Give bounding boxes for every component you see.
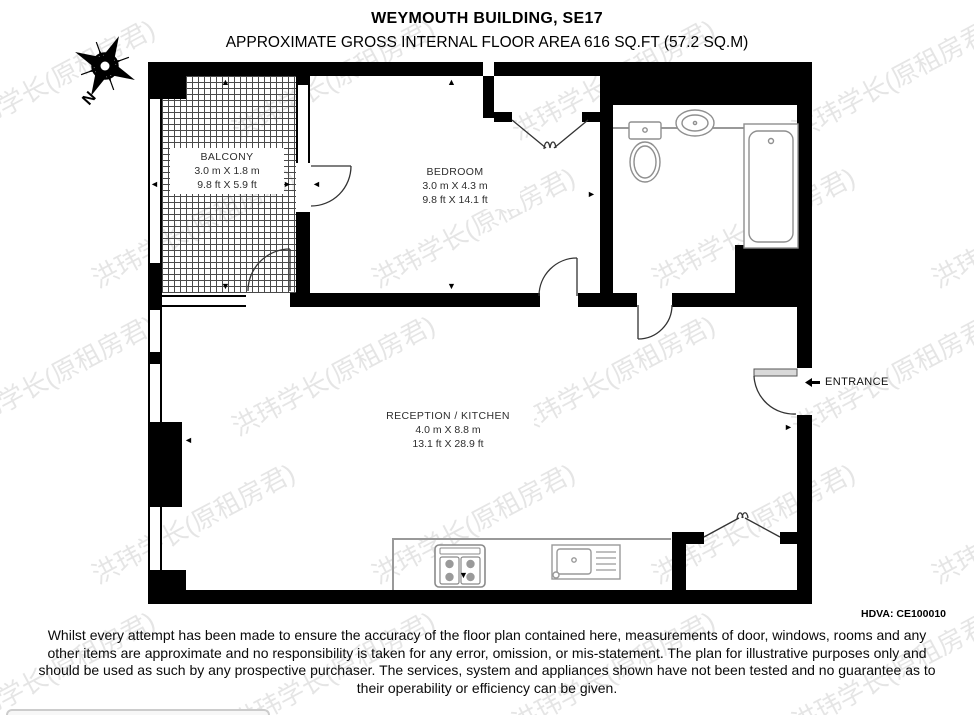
- door-bathroom: [638, 305, 672, 339]
- page-subtitle: APPROXIMATE GROSS INTERNAL FLOOR AREA 61…: [0, 34, 974, 52]
- hob-icon: [435, 545, 485, 587]
- window-balcony-bedroom: [296, 85, 310, 163]
- watermark-text: 洪玮学长(原租房君): [0, 9, 161, 147]
- reference-code: HDVA: CE100010: [861, 608, 946, 620]
- window-reception-1: [148, 310, 162, 352]
- dimension-arrow: ◄: [150, 180, 159, 189]
- room-size-metric: 3.0 m X 1.8 m: [170, 164, 284, 178]
- window-reception-2: [148, 364, 162, 422]
- door-bedroom: [539, 258, 577, 296]
- dimension-arrow: ▼: [459, 571, 468, 580]
- wall-top-joint-gap: [483, 62, 494, 76]
- dimension-arrow: ▼: [447, 282, 456, 291]
- watermark-text: 洪玮学长(原租房君): [85, 453, 301, 591]
- toilet-icon: [629, 122, 661, 182]
- room-label-reception-kitchen: RECEPTION / KITCHEN 4.0 m X 8.8 m 13.1 f…: [362, 407, 534, 453]
- entrance-label-group: ENTRANCE: [805, 376, 889, 388]
- closet-jamb-left: [483, 76, 494, 118]
- kitchen-sink-icon: [552, 545, 620, 579]
- dimension-arrow: ▲: [221, 78, 230, 87]
- room-name: BALCONY: [170, 150, 284, 164]
- dimension-arrow: ►: [784, 423, 793, 432]
- cropped-banner-edge: [6, 709, 270, 715]
- wall-bathroom-corner-block: [735, 245, 797, 307]
- window-reception-3: [148, 507, 162, 570]
- watermark-text: 洪玮学长(原租房君): [785, 305, 974, 443]
- wall-right-lower: [797, 415, 812, 604]
- wall-left-segment: [148, 352, 162, 364]
- wall-balcony-bedroom-divider: [296, 62, 310, 85]
- cupboard-stub-right: [780, 532, 797, 544]
- room-name: BEDROOM: [390, 165, 520, 179]
- watermark-text: 洪玮学长(原租房君): [785, 9, 974, 147]
- wall-corner-balcony: [148, 62, 186, 99]
- compass-north-label: N: [79, 89, 99, 109]
- dimension-arrow: ◄: [184, 436, 193, 445]
- room-size-imperial: 13.1 ft X 28.9 ft: [362, 437, 534, 451]
- watermark-text: 洪玮学长(原租房君): [365, 453, 581, 591]
- wall-right-upper: [797, 62, 812, 368]
- wall-bathroom-bottom: [613, 293, 637, 307]
- wall-left-pillar: [148, 422, 182, 507]
- wall-bathroom-bottom: [672, 293, 735, 307]
- floorplan-page: 洪玮学长(原租房君)洪玮学长(原租房君)洪玮学长(原租房君)洪玮学长(原租房君)…: [0, 0, 974, 715]
- cupboard-wall-left: [672, 532, 686, 590]
- room-size-metric: 3.0 m X 4.3 m: [390, 179, 520, 193]
- entrance-arrow-icon: [805, 378, 820, 387]
- bathtub-icon: [744, 124, 798, 248]
- basin-icon: [676, 110, 714, 136]
- cupboard-double-doors: [704, 513, 780, 537]
- dimension-arrow: ►: [587, 190, 596, 199]
- dimension-arrow: ►: [283, 180, 292, 189]
- watermark-text: 洪玮学长(原租房君): [0, 305, 161, 443]
- wall-left-segment: [148, 263, 162, 310]
- wall-balcony-bottom-jamb: [290, 293, 310, 307]
- cupboard-stub-left: [686, 532, 704, 544]
- wall-bedroom-bottom-jamb: [578, 293, 613, 307]
- page-title: WEYMOUTH BUILDING, SE17: [0, 10, 974, 28]
- entrance-label: ENTRANCE: [825, 376, 889, 388]
- room-name: RECEPTION / KITCHEN: [362, 409, 534, 423]
- room-label-balcony: BALCONY 3.0 m X 1.8 m 9.8 ft X 5.9 ft: [170, 148, 284, 194]
- wall-bottom: [148, 590, 812, 604]
- wall-top-bathroom: [613, 62, 812, 105]
- watermark-text: 洪玮学长(原租房君): [505, 305, 721, 443]
- window-balcony-bottom: [162, 295, 246, 307]
- closet-stub-left: [494, 112, 512, 122]
- room-size-imperial: 9.8 ft X 5.9 ft: [170, 178, 284, 192]
- room-label-bedroom: BEDROOM 3.0 m X 4.3 m 9.8 ft X 14.1 ft: [390, 163, 520, 209]
- room-size-metric: 4.0 m X 8.8 m: [362, 423, 534, 437]
- kitchen-counter-edge: [393, 539, 671, 590]
- wall-bedroom-bottom: [310, 293, 540, 307]
- watermark-text: 洪玮学长(原租房君): [925, 157, 974, 295]
- closet-double-doors: [512, 120, 588, 149]
- wall-bedroom-bathroom-divider: [600, 62, 613, 307]
- watermark-text: 洪玮学长(原租房君): [925, 453, 974, 591]
- dimension-arrow: ▼: [221, 282, 230, 291]
- dimension-arrow: ▲: [447, 78, 456, 87]
- door-entrance: [754, 369, 797, 414]
- dimension-arrow: ◄: [312, 180, 321, 189]
- closet-stub-right: [582, 112, 600, 122]
- disclaimer-text: Whilst every attempt has been made to en…: [30, 627, 944, 697]
- room-size-imperial: 9.8 ft X 14.1 ft: [390, 193, 520, 207]
